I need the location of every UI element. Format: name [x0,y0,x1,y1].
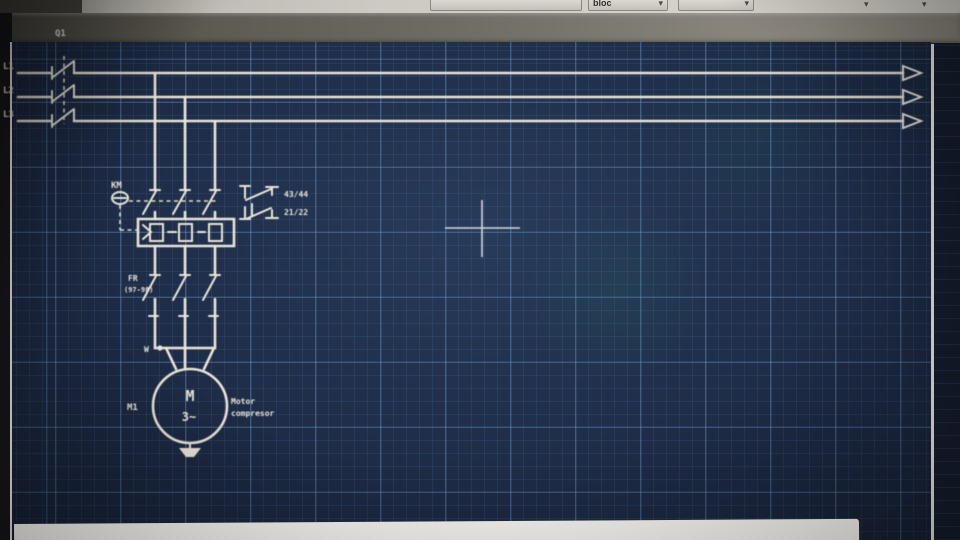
bus-arrowhead [903,66,921,80]
motor-phases[interactable]: 3~ [182,410,196,424]
aux-contacts[interactable] [240,186,278,219]
motor-letter[interactable]: M [185,387,194,405]
overload-label[interactable]: FR [128,274,138,283]
motor-ref-label[interactable]: M1 [127,403,138,413]
branch-drops[interactable] [155,73,215,190]
motor-desc-line2[interactable]: compresor [231,409,275,418]
phase-label-l2[interactable]: L2 [3,86,14,96]
bus-lines[interactable] [18,66,921,128]
disconnect-switch[interactable] [52,56,74,127]
overload-drops[interactable] [155,246,215,274]
crosshair-cursor [445,200,520,257]
overload-relay-box[interactable] [138,219,234,246]
motor-desc-line1[interactable]: Motor [231,397,255,406]
overload-terminals-label[interactable]: (97-98) [124,286,154,294]
screen-photo: bloc ▾ ▾ ▾ ▾ [0,0,960,540]
disconnect-label[interactable]: Q1 [55,29,66,39]
bus-arrowhead [903,90,921,104]
phase-label-l3[interactable]: L3 [3,110,14,120]
aux-nc-label[interactable]: 21/22 [284,208,308,217]
contactor-contacts[interactable] [112,190,220,230]
schematic-drawing: L1 L2 L3 Q1 KM 43/44 21/22 FR (97-98) W … [0,0,960,540]
contactor-label[interactable]: KM [111,181,122,191]
bus-arrowhead [903,114,921,128]
motor-feed[interactable] [155,345,215,369]
aux-no-label[interactable]: 43/44 [284,190,308,199]
overload-trip-contacts[interactable] [143,275,220,348]
junction-label[interactable]: W [144,345,149,354]
phase-label-l1[interactable]: L1 [3,62,14,72]
ground-icon [179,448,201,457]
